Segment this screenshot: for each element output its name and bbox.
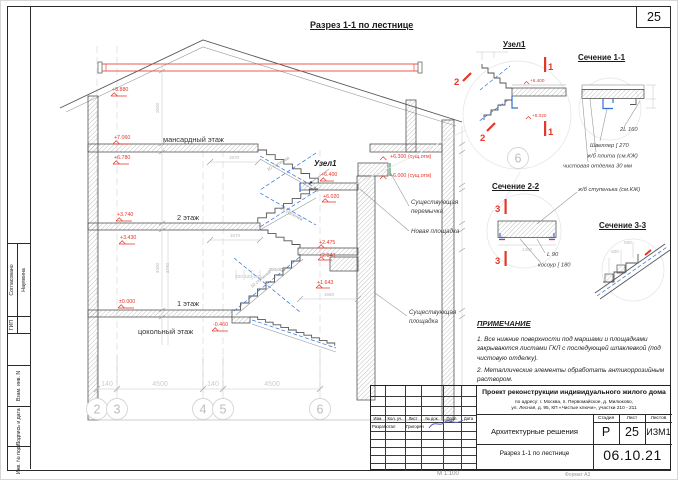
tb-project-name: Проект реконструкции индивидуального жил… [476,389,672,396]
note-item-1: 1. Все нижние поверхности под маршами и … [477,335,669,363]
tb-sheet-title: Разрез 1-1 по лестнице [476,450,593,457]
tb-col-izm: Изм. [371,416,385,421]
tb-doc-type: Архитектурные решения [476,427,593,436]
tb-list-label: Лист [619,416,645,421]
format-note: Формат А3 [565,472,590,478]
tb-stage-label: Стадия [593,416,619,421]
tb-stage-value: Р [593,425,619,439]
stamp-gip-sign-cell [18,316,30,333]
tb-date: 06.10.21 [593,447,672,463]
tb-address-line1: по адресу: г. Москва, п. Первомайское, д… [476,400,672,405]
notes-heading: ПРИМЕЧАНИЕ [477,319,669,328]
stamp-vzam-label: Взам. инв. N [16,371,22,401]
stamp-sign-date-label: Подпись и дата [16,408,22,445]
tb-developed-name: Григорян [406,424,424,429]
stamp-name: Наумкина [21,268,27,292]
tb-list-value: 25 [619,425,645,439]
heading-uzel1: Узел1 [503,40,525,49]
page-number-box: 25 [636,6,671,28]
side-stamp-strip: Согласовано Наумкина ГИП Взам. инв. N По… [7,6,31,469]
heading-section-1-1: Сечение 1-1 [578,53,625,62]
tb-col-list: Лист [405,416,421,421]
tb-col-koluch: Кол. уч. [385,416,405,421]
page-number: 25 [647,10,661,24]
note-item-2: 2. Металлические элементы обработать ант… [477,366,669,385]
notes-block: ПРИМЕЧАНИЕ 1. Все нижние поверхности под… [477,319,669,387]
tb-lists-value: ИЗМ1 [645,427,672,437]
stamp-agreed-cell: Согласовано [7,243,18,316]
stamp-gip-label: ГИП [9,320,15,330]
sheet: 2600 3400 3740 1970 1870 420 420 420 300… [0,0,678,480]
stamp-name-cell: Наумкина [18,243,30,316]
stamp-gip-cell: ГИП [7,316,18,333]
tb-developed-label: Разработал [372,424,395,429]
tb-lists-label: Листов [645,416,672,421]
stamp-agreed-label: Согласовано [9,264,15,295]
heading-section-3-3: Сечение 3-3 [599,221,646,230]
stamp-inv-label: Инв. № подл. [16,442,22,474]
scale-note: М 1:100 [425,471,471,477]
sheet-main-title: Разрез 1-1 по лестнице [310,20,413,30]
stamp-divider [7,333,30,334]
stamp-vzam-cell: Взам. инв. N [7,365,30,407]
title-block: Изм. Кол. уч. Лист № док. Подп. Дата Раз… [370,385,671,470]
signature [426,417,466,432]
heading-section-2-2: Сечение 2-2 [492,182,539,191]
stamp-inv-cell: Инв. № подл. [7,447,30,469]
tb-address-line2: ул. Лесная, д. 95, КП «Чистые ключи», уч… [476,406,672,411]
